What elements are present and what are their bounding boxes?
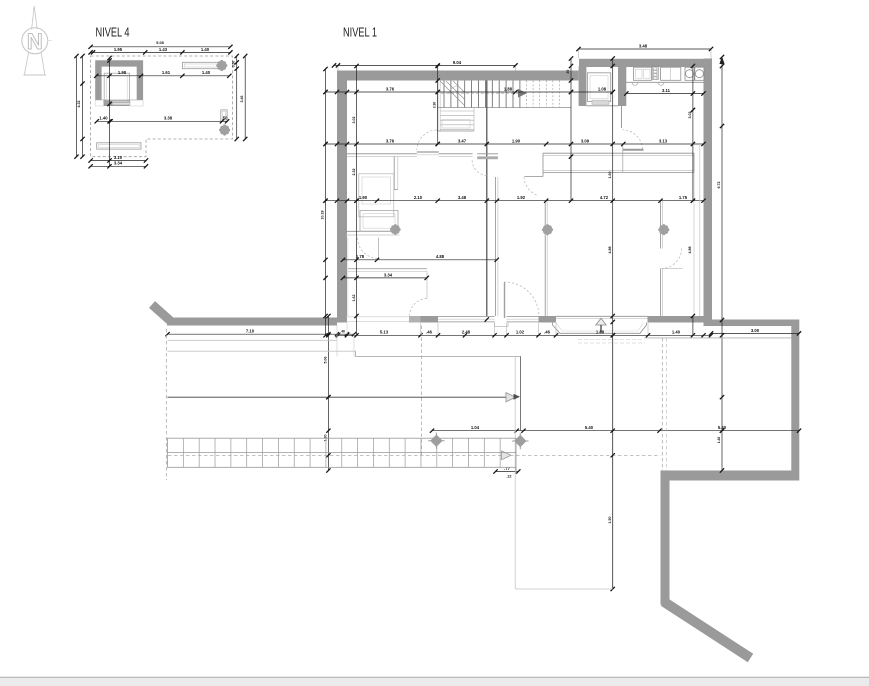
svg-text:3.46: 3.46	[240, 96, 244, 103]
svg-text:5.08: 5.08	[156, 41, 163, 45]
svg-text:1.40: 1.40	[202, 70, 211, 75]
svg-text:1.62: 1.62	[352, 295, 356, 302]
svg-text:.77: .77	[504, 466, 510, 471]
svg-text:3.76: 3.76	[386, 138, 395, 143]
svg-text:1.75: 1.75	[679, 195, 688, 200]
svg-text:1.90: 1.90	[512, 138, 521, 143]
svg-text:3.34: 3.34	[384, 272, 393, 277]
svg-text:3.48: 3.48	[458, 195, 467, 200]
svg-text:3.13: 3.13	[659, 138, 668, 143]
svg-text:3.00: 3.00	[751, 328, 760, 333]
svg-text:NIVEL 4: NIVEL 4	[96, 25, 130, 39]
svg-text:1.90: 1.90	[359, 195, 368, 200]
svg-text:1.95: 1.95	[114, 47, 123, 52]
svg-text:9.04: 9.04	[453, 60, 462, 65]
svg-text:2.32: 2.32	[352, 169, 356, 176]
svg-text:0.50: 0.50	[232, 61, 236, 68]
svg-text:4.32: 4.32	[77, 101, 81, 108]
svg-text:2.10: 2.10	[414, 195, 423, 200]
svg-text:5.40: 5.40	[585, 425, 594, 430]
svg-text:.46: .46	[544, 330, 550, 335]
svg-text:1.43: 1.43	[159, 47, 168, 52]
svg-text:3.10: 3.10	[114, 155, 123, 160]
svg-text:.50: .50	[222, 116, 228, 121]
svg-text:10.18: 10.18	[321, 211, 325, 220]
svg-text:.50: .50	[566, 70, 570, 75]
svg-text:NIVEL 1: NIVEL 1	[343, 25, 377, 39]
svg-text:1.40: 1.40	[672, 330, 681, 335]
svg-text:1.02: 1.02	[516, 330, 525, 335]
svg-text:1.88: 1.88	[596, 330, 605, 335]
svg-text:4.72: 4.72	[600, 195, 609, 200]
svg-text:3.02: 3.02	[352, 117, 356, 124]
svg-text:3.48: 3.48	[639, 43, 648, 48]
svg-text:.22: .22	[507, 474, 512, 478]
svg-text:4.88: 4.88	[436, 254, 445, 259]
svg-text:1.04: 1.04	[471, 425, 480, 430]
svg-text:3.30: 3.30	[433, 102, 437, 109]
svg-text:1.88: 1.88	[504, 86, 513, 91]
svg-text:3.11: 3.11	[662, 88, 671, 93]
svg-text:9.72: 9.72	[717, 182, 721, 189]
svg-text:1.40: 1.40	[201, 47, 210, 52]
svg-text:1.61: 1.61	[162, 70, 171, 75]
svg-text:3.38: 3.38	[164, 116, 173, 121]
svg-text:5.06: 5.06	[323, 357, 327, 364]
svg-text:1.60: 1.60	[608, 172, 612, 179]
svg-text:N: N	[27, 29, 43, 54]
svg-text:.46: .46	[426, 330, 432, 335]
svg-text:4.88: 4.88	[688, 247, 692, 254]
svg-text:3.76: 3.76	[386, 86, 395, 91]
svg-text:1.50: 1.50	[608, 517, 612, 524]
svg-text:5.13: 5.13	[380, 330, 389, 335]
svg-text:3.02: 3.02	[688, 112, 692, 119]
svg-text:3.09: 3.09	[581, 138, 590, 143]
svg-text:2.48: 2.48	[462, 330, 471, 335]
svg-text:1.98: 1.98	[118, 70, 127, 75]
svg-text:1.92: 1.92	[517, 195, 526, 200]
svg-text:1.08: 1.08	[598, 86, 607, 91]
svg-text:4.88: 4.88	[608, 247, 612, 254]
svg-text:.46: .46	[340, 329, 345, 333]
svg-text:1.40: 1.40	[99, 116, 108, 121]
svg-text:3.47: 3.47	[458, 138, 467, 143]
svg-text:1.48: 1.48	[717, 437, 721, 444]
svg-text:7.10: 7.10	[246, 329, 255, 334]
svg-text:3.34: 3.34	[114, 161, 123, 166]
